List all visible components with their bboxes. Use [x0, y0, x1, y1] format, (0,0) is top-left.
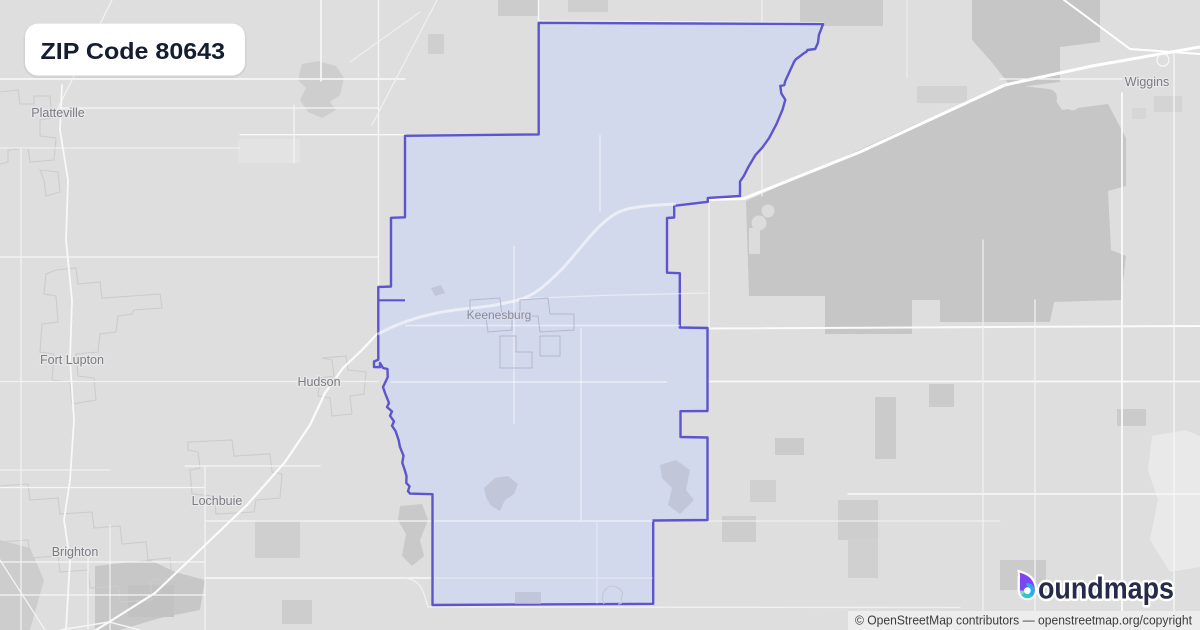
svg-text:Keenesburg: Keenesburg	[467, 308, 532, 322]
svg-text:ZIP Code 80643: ZIP Code 80643	[41, 38, 225, 64]
svg-text:oundmaps: oundmaps	[1038, 571, 1174, 606]
svg-text:© OpenStreetMap contributors —: © OpenStreetMap contributors — openstree…	[855, 613, 1192, 628]
svg-text:Wiggins: Wiggins	[1125, 75, 1169, 89]
svg-text:Platteville: Platteville	[31, 106, 85, 120]
svg-text:Lochbuie: Lochbuie	[192, 494, 243, 508]
svg-text:Fort Lupton: Fort Lupton	[40, 353, 104, 367]
svg-text:Hudson: Hudson	[297, 375, 340, 389]
svg-text:Brighton: Brighton	[52, 545, 99, 559]
